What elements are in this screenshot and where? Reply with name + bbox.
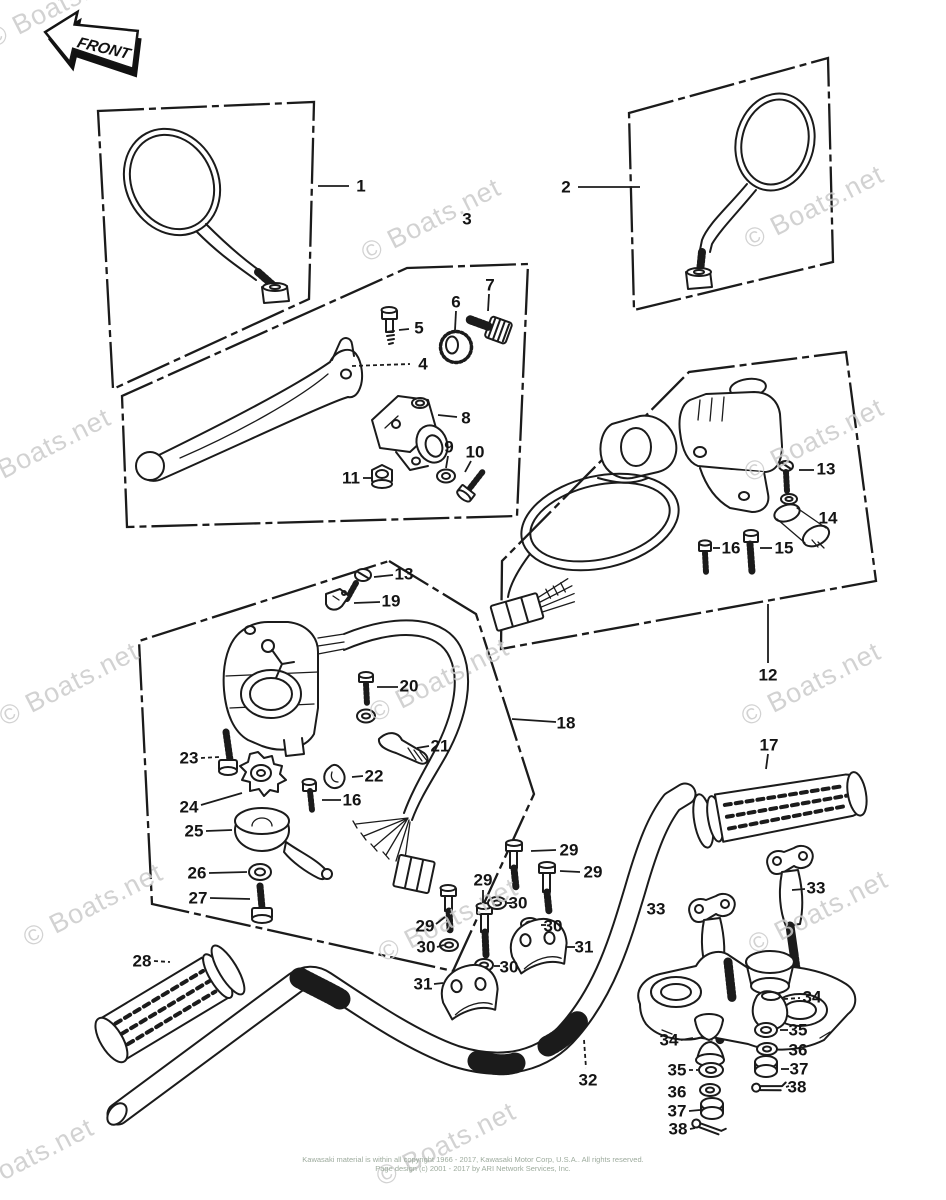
right-switch-panel	[501, 352, 876, 649]
part-callout-9: 9	[444, 438, 453, 457]
adjuster-knob-6	[441, 332, 472, 363]
clutch-lever	[136, 338, 362, 481]
washer-36-right	[757, 1043, 777, 1055]
part-callout-14: 14	[819, 509, 838, 528]
part-callout-35: 35	[668, 1061, 687, 1080]
part-callout-17: 17	[760, 736, 779, 755]
callout-leader-line	[465, 461, 471, 472]
callout-leader-line	[210, 898, 250, 899]
copyright-line-1: Kawasaki material is within all copyrigh…	[0, 1155, 946, 1164]
part-callout-1: 1	[356, 177, 365, 196]
part-callout-33: 33	[647, 900, 666, 919]
callout-leader-line	[201, 793, 242, 805]
part-callout-3: 3	[462, 210, 471, 229]
part-callout-30: 30	[509, 894, 528, 913]
part-callout-30: 30	[500, 958, 519, 977]
part-callout-4: 4	[418, 355, 428, 374]
star-washer-24	[240, 752, 286, 796]
clamp-31a	[437, 961, 501, 1020]
callout-leader-line	[434, 983, 443, 984]
part-callout-7: 7	[485, 276, 494, 295]
mirror-2	[686, 85, 825, 289]
callout-leader-line	[206, 830, 232, 831]
part-callout-8: 8	[461, 409, 470, 428]
bolt-29b	[539, 862, 555, 912]
callout-leader-line	[201, 757, 219, 758]
part-callout-12: 12	[759, 666, 778, 685]
bolt-27	[252, 886, 272, 923]
callout-leader-line	[766, 754, 768, 769]
part-callout-18: 18	[557, 714, 576, 733]
part-callout-36: 36	[668, 1083, 687, 1102]
part-callout-16: 16	[343, 791, 362, 810]
part-callout-30: 30	[417, 938, 436, 957]
left-mirror-panel	[98, 102, 314, 389]
switch-housing-left	[224, 622, 318, 756]
grip-17	[690, 766, 871, 849]
bolt-15	[744, 530, 758, 572]
bolt-5	[382, 307, 398, 344]
callout-leader-line	[352, 776, 363, 777]
watermark-text: © Boats.net	[371, 1096, 520, 1192]
washer-9	[437, 470, 455, 483]
callout-leader-line	[689, 1110, 700, 1111]
part-callout-31: 31	[575, 938, 594, 957]
bolt-10	[455, 467, 488, 503]
callout-leader-line	[560, 871, 580, 872]
dimmer-knob-19	[326, 589, 349, 610]
callout-leader-line	[399, 329, 409, 330]
part-callout-28: 28	[133, 952, 152, 971]
right-mirror-panel	[629, 58, 833, 310]
washer-35-left	[699, 1063, 723, 1077]
washer-36-left	[700, 1084, 720, 1096]
callout-leader-line	[417, 746, 429, 748]
part-callout-15: 15	[775, 539, 794, 558]
callout-leader-line	[354, 602, 380, 603]
part-callout-11: 11	[342, 469, 360, 488]
bolt-23	[219, 732, 237, 775]
part-callout-24: 24	[180, 798, 199, 817]
part-callout-29: 29	[416, 917, 435, 936]
copyright-footer: Kawasaki material is within all copyrigh…	[0, 1155, 946, 1173]
part-callout-29: 29	[474, 871, 493, 890]
switch-housing-right	[600, 377, 782, 512]
bolt-16-right	[699, 540, 711, 572]
nut-11	[372, 465, 392, 488]
callout-leader-line	[531, 850, 556, 851]
nut-37-left	[701, 1098, 723, 1119]
part-callout-33: 33	[807, 879, 826, 898]
copyright-line-2: Page design (c) 2001 - 2017 by ARI Netwo…	[0, 1164, 946, 1173]
washer-26	[249, 864, 271, 880]
part-callout-19: 19	[382, 592, 401, 611]
lever-holder	[372, 396, 453, 470]
part-callout-21: 21	[431, 737, 450, 756]
washer-35-right	[755, 1023, 777, 1037]
part-callout-37: 37	[668, 1102, 687, 1121]
bolt-16-left	[303, 779, 317, 810]
parts-diagram-canvas: FRONT	[0, 0, 946, 1200]
part-callout-32: 32	[579, 1071, 598, 1090]
part-callout-5: 5	[414, 319, 423, 338]
watermark-text: © Boats.net	[356, 172, 505, 268]
part-callout-20: 20	[400, 677, 419, 696]
mirror-1	[106, 112, 289, 303]
part-callout-10: 10	[466, 443, 485, 462]
part-callout-2: 2	[561, 178, 570, 197]
callout-leader-line	[690, 1128, 695, 1129]
callout-leader-line	[512, 719, 556, 722]
part-callout-37: 37	[790, 1060, 809, 1079]
part-callout-13: 13	[395, 565, 414, 584]
callout-leader-line	[584, 1040, 586, 1068]
callout-leader-line	[209, 872, 247, 873]
watermark-text: © Boats.net	[0, 402, 116, 498]
callout-leader-line	[455, 311, 456, 330]
callout-leader-line	[488, 294, 489, 311]
callout-leader-line	[438, 415, 457, 417]
watermark-text: © Boats.net	[18, 857, 167, 953]
callout-leader-line	[374, 575, 393, 577]
part-callout-34: 34	[660, 1031, 679, 1050]
part-callout-38: 38	[788, 1078, 807, 1097]
watermark-text: © Boats.net	[364, 632, 513, 728]
part-callout-31: 31	[414, 975, 433, 994]
part-callout-29: 29	[560, 841, 579, 860]
callout-leader-line	[446, 456, 448, 468]
part-callout-6: 6	[451, 293, 460, 312]
cotter-pin-38-right	[752, 1080, 787, 1095]
nut-37-right	[755, 1056, 777, 1077]
part-callout-30: 30	[544, 917, 563, 936]
parts-diagram-page: FRONT	[0, 0, 946, 1200]
adjuster-bolt-7	[467, 309, 513, 344]
damper-34-right	[746, 951, 794, 1029]
part-callout-16: 16	[722, 539, 741, 558]
part-callout-23: 23	[180, 749, 199, 768]
clip-22	[324, 765, 344, 788]
part-callout-22: 22	[365, 767, 384, 786]
callout-leader-line	[792, 889, 805, 890]
part-callout-35: 35	[789, 1021, 808, 1040]
part-callout-36: 36	[789, 1041, 808, 1060]
part-callout-27: 27	[189, 889, 208, 908]
part-callout-38: 38	[669, 1120, 688, 1139]
callout-leader-line	[154, 961, 170, 962]
cotter-pin-38-left	[691, 1119, 726, 1136]
part-callout-29: 29	[584, 863, 603, 882]
grip-28	[88, 941, 251, 1069]
part-callout-13: 13	[817, 460, 836, 479]
part-callout-34: 34	[803, 988, 822, 1007]
part-callout-26: 26	[188, 864, 207, 883]
watermark-text: © Boats.net	[0, 636, 144, 732]
part-callout-25: 25	[185, 822, 204, 841]
